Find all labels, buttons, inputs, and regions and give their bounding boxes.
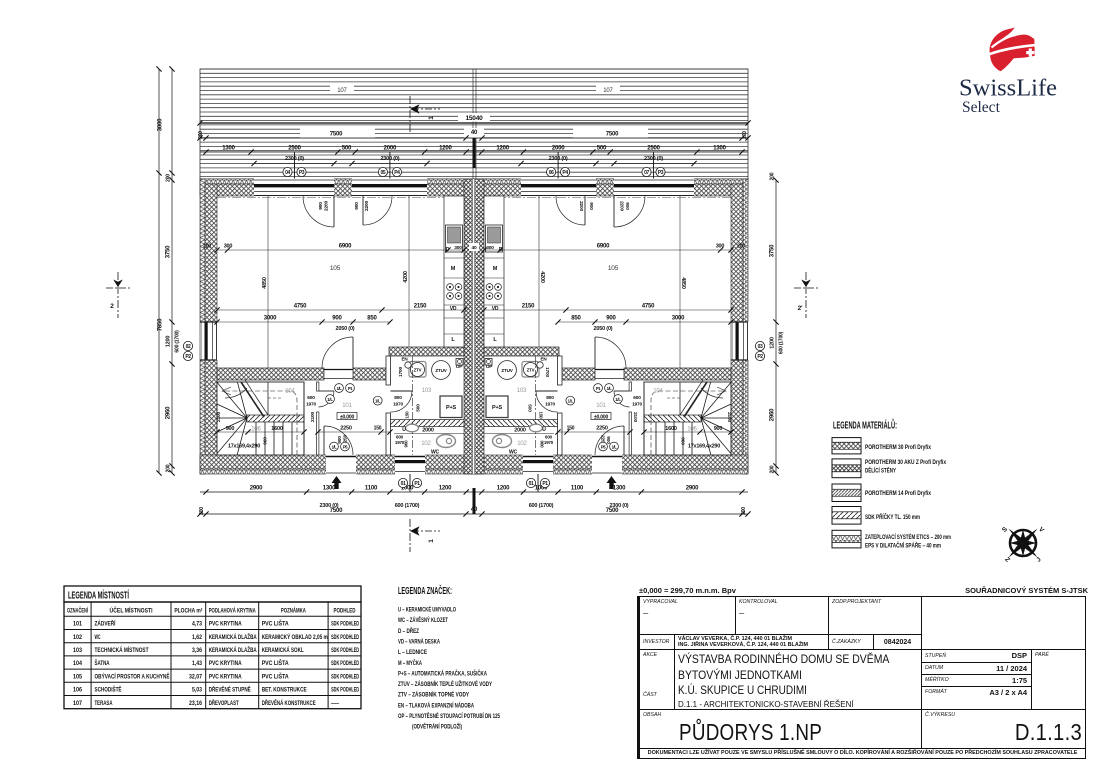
svg-text:2100: 2100 xyxy=(310,412,316,422)
svg-text:102: 102 xyxy=(421,441,431,447)
svg-text:106: 106 xyxy=(687,427,697,433)
svg-text:PVC KRYTINA: PVC KRYTINA xyxy=(209,621,242,628)
svg-text:1100: 1100 xyxy=(571,486,584,492)
svg-text:ZATEPLOVACÍ SYSTÉM ETICS – 200: ZATEPLOVACÍ SYSTÉM ETICS – 200 mm xyxy=(865,532,951,541)
svg-text:SwissLife: SwissLife xyxy=(959,75,1057,102)
svg-text:1200: 1200 xyxy=(439,486,452,492)
svg-text:900: 900 xyxy=(606,316,616,322)
svg-text:600 (1700): 600 (1700) xyxy=(395,503,420,509)
svg-text:4750: 4750 xyxy=(294,304,307,310)
svg-text:DŘEVĚNÉ STUPNĚ: DŘEVĚNÉ STUPNĚ xyxy=(209,686,251,694)
svg-text:3750: 3750 xyxy=(770,244,776,257)
svg-text:107: 107 xyxy=(73,701,83,707)
svg-text:SDK PODHLED: SDK PODHLED xyxy=(331,687,359,694)
svg-text:105: 105 xyxy=(73,674,83,680)
svg-text:1300: 1300 xyxy=(323,486,336,492)
svg-text:900: 900 xyxy=(624,202,630,210)
svg-text:ÚČEL MÍSTNOSTI: ÚČEL MÍSTNOSTI xyxy=(110,607,153,615)
svg-text:900: 900 xyxy=(337,436,343,444)
svg-text:1/L: 1/L xyxy=(568,398,574,403)
svg-text:103: 103 xyxy=(517,388,527,394)
svg-text:600: 600 xyxy=(633,395,641,401)
svg-text:2100: 2100 xyxy=(726,412,732,422)
svg-text:WC: WC xyxy=(95,634,101,641)
svg-text:1/L: 1/L xyxy=(607,386,613,391)
svg-text:U: U xyxy=(402,427,406,433)
svg-text:U: U xyxy=(542,427,546,433)
svg-text:32,07: 32,07 xyxy=(189,673,202,680)
svg-text:OP: OP xyxy=(456,364,464,370)
svg-text:P+S: P+S xyxy=(446,405,456,411)
svg-text:106: 106 xyxy=(251,427,261,433)
svg-text:300: 300 xyxy=(454,245,462,251)
svg-text:102: 102 xyxy=(517,441,527,447)
svg-text:PODHLED: PODHLED xyxy=(334,608,356,615)
svg-text:4850: 4850 xyxy=(680,277,686,289)
svg-text:P1: P1 xyxy=(414,481,420,487)
svg-text:———: ——— xyxy=(331,700,339,707)
svg-text:DŘEVĚNÁ KONSTRUKCE: DŘEVĚNÁ KONSTRUKCE xyxy=(262,699,316,707)
svg-text:7850: 7850 xyxy=(158,318,164,331)
svg-text:2150: 2150 xyxy=(522,304,535,310)
svg-text:300: 300 xyxy=(486,245,494,251)
svg-text:2900: 2900 xyxy=(686,486,699,492)
svg-text:2500: 2500 xyxy=(288,146,301,152)
svg-text:1970: 1970 xyxy=(393,402,403,408)
svg-text:1/L: 1/L xyxy=(375,398,381,403)
svg-text:101: 101 xyxy=(73,622,83,628)
svg-text:ZTV: ZTV xyxy=(527,368,535,373)
svg-text:1700: 1700 xyxy=(398,367,404,377)
svg-text:106: 106 xyxy=(73,688,83,694)
svg-text:40: 40 xyxy=(471,507,478,513)
svg-text:D: D xyxy=(446,247,450,253)
svg-text:200: 200 xyxy=(770,172,776,180)
svg-text:960: 960 xyxy=(263,437,269,445)
svg-text:850: 850 xyxy=(571,316,581,322)
svg-text:40: 40 xyxy=(472,245,477,251)
svg-text:101: 101 xyxy=(596,403,606,409)
svg-text:7500: 7500 xyxy=(330,508,343,514)
svg-text:1,62: 1,62 xyxy=(192,634,202,641)
svg-text:2000: 2000 xyxy=(422,428,434,434)
svg-text:DŘEVOPLAST: DŘEVOPLAST xyxy=(209,699,239,707)
svg-text:1: 1 xyxy=(428,116,435,120)
svg-text:LEGENDA ZNAČEK:: LEGENDA ZNAČEK: xyxy=(398,584,452,597)
svg-text:2000: 2000 xyxy=(514,428,526,434)
svg-text:200: 200 xyxy=(770,465,776,473)
svg-text:WC: WC xyxy=(431,450,440,456)
svg-text:150: 150 xyxy=(374,426,382,432)
svg-text:103: 103 xyxy=(73,648,83,654)
svg-text:17x169,4x290: 17x169,4x290 xyxy=(688,444,720,450)
svg-text:107: 107 xyxy=(337,88,347,94)
svg-text:Select: Select xyxy=(962,99,1001,116)
svg-text:1970: 1970 xyxy=(545,402,555,408)
svg-text:3750: 3750 xyxy=(166,245,172,258)
svg-text:2150: 2150 xyxy=(414,304,427,310)
svg-text:ZTUV – ZÁSOBNÍK TEPLÉ UŽITKOVÉ: ZTUV – ZÁSOBNÍK TEPLÉ UŽITKOVÉ VODY xyxy=(398,679,493,688)
svg-text:POZNÁMKA: POZNÁMKA xyxy=(281,608,306,615)
svg-text:2500: 2500 xyxy=(647,146,660,152)
svg-text:SDK PODHLED: SDK PODHLED xyxy=(331,647,359,654)
svg-text:2: 2 xyxy=(110,303,114,310)
svg-text:POROTHERM 14 Profi Dryfix: POROTHERM 14 Profi Dryfix xyxy=(865,490,931,497)
svg-text:POROTHERM 30 Profi Dryfix: POROTHERM 30 Profi Dryfix xyxy=(865,444,931,451)
svg-text:1/L: 1/L xyxy=(615,397,621,402)
svg-text:M – MYČKA: M – MYČKA xyxy=(398,658,422,667)
svg-text:1600: 1600 xyxy=(271,426,283,432)
svg-text:1200: 1200 xyxy=(439,146,452,152)
svg-text:600 (1700): 600 (1700) xyxy=(529,503,554,509)
svg-text:200: 200 xyxy=(742,131,748,139)
svg-text:OZNAČENÍ: OZNAČENÍ xyxy=(67,607,88,615)
svg-text:600 (1700): 600 (1700) xyxy=(175,330,181,353)
svg-text:KERAMICKÁ DLAŽBA: KERAMICKÁ DLAŽBA xyxy=(209,646,257,654)
svg-text:03: 03 xyxy=(758,344,763,350)
svg-text:1970: 1970 xyxy=(632,402,642,408)
svg-text:1200: 1200 xyxy=(496,146,509,152)
svg-text:KERAMICKÝ OBKLAD 2,05 m: KERAMICKÝ OBKLAD 2,05 m xyxy=(262,634,328,641)
svg-text:VD: VD xyxy=(492,306,499,312)
svg-text:104: 104 xyxy=(285,389,295,395)
svg-text:LEGENDA MÍSTNOSTÍ: LEGENDA MÍSTNOSTÍ xyxy=(68,589,130,602)
svg-text:ZTV: ZTV xyxy=(414,368,422,373)
svg-text:2050 (0): 2050 (0) xyxy=(336,326,355,332)
svg-text:900: 900 xyxy=(540,441,545,449)
svg-text:D – DŘEZ: D – DŘEZ xyxy=(398,626,419,635)
svg-text:600: 600 xyxy=(396,435,404,440)
svg-text:01: 01 xyxy=(401,481,406,487)
svg-text:ŠATNA: ŠATNA xyxy=(95,659,110,667)
svg-text:1600: 1600 xyxy=(665,426,677,432)
svg-text:TECHNICKÁ MÍSTNOST: TECHNICKÁ MÍSTNOST xyxy=(95,646,149,654)
svg-text:TERASA: TERASA xyxy=(95,700,113,707)
svg-text:01: 01 xyxy=(529,481,534,487)
svg-text:1970: 1970 xyxy=(306,402,316,408)
svg-text:7500: 7500 xyxy=(330,132,343,138)
svg-text:2200: 2200 xyxy=(364,201,370,211)
svg-text:40: 40 xyxy=(471,130,478,136)
svg-text:DĚLÍCÍ STĚNY: DĚLÍCÍ STĚNY xyxy=(865,466,897,475)
svg-text:900: 900 xyxy=(226,426,235,432)
svg-text:2250: 2250 xyxy=(596,426,608,432)
svg-text:2960: 2960 xyxy=(166,406,172,419)
svg-text:2200: 2200 xyxy=(619,201,625,211)
svg-text:1/L: 1/L xyxy=(612,444,618,449)
svg-text:PVC KRYTINA: PVC KRYTINA xyxy=(209,673,242,680)
svg-text:600 (1700): 600 (1700) xyxy=(779,331,785,354)
svg-text:101: 101 xyxy=(342,403,352,409)
svg-text:P3: P3 xyxy=(299,170,305,176)
svg-text:4200: 4200 xyxy=(403,271,409,283)
svg-text:1700: 1700 xyxy=(544,367,550,377)
svg-text:900: 900 xyxy=(354,202,360,210)
svg-text:1300: 1300 xyxy=(613,486,626,492)
svg-text:WC: WC xyxy=(509,450,518,456)
svg-text:U – KERAMICKÉ UMYVADLO: U – KERAMICKÉ UMYVADLO xyxy=(398,605,456,614)
svg-text:2200: 2200 xyxy=(578,201,584,211)
svg-text:1/L: 1/L xyxy=(337,386,343,391)
svg-text:2900: 2900 xyxy=(250,486,263,492)
svg-text:1200: 1200 xyxy=(497,486,510,492)
svg-text:D: D xyxy=(499,247,503,253)
svg-text:7500: 7500 xyxy=(606,508,619,514)
svg-text:1/L: 1/L xyxy=(327,397,333,402)
svg-text:200: 200 xyxy=(741,507,747,515)
svg-text:ZTUV: ZTUV xyxy=(501,368,513,373)
svg-text:P4: P4 xyxy=(394,170,400,176)
svg-text:05: 05 xyxy=(381,170,386,176)
svg-text:SDK PODHLED: SDK PODHLED xyxy=(331,660,359,667)
svg-text:ZÁDVEŘÍ: ZÁDVEŘÍ xyxy=(95,620,116,628)
svg-text:900: 900 xyxy=(588,202,594,210)
svg-text:300: 300 xyxy=(224,244,233,250)
svg-text:4750: 4750 xyxy=(642,304,655,310)
svg-text:500: 500 xyxy=(342,146,352,152)
svg-text:2960: 2960 xyxy=(770,408,776,421)
svg-text:1300: 1300 xyxy=(222,146,235,152)
svg-text:PVC LIŠTA: PVC LIŠTA xyxy=(262,672,289,680)
svg-text:06: 06 xyxy=(549,170,554,176)
svg-text:P+S: P+S xyxy=(492,405,502,411)
svg-text:500: 500 xyxy=(527,404,533,412)
svg-text:3000: 3000 xyxy=(264,316,277,322)
svg-text:02: 02 xyxy=(186,344,191,350)
svg-text:1: 1 xyxy=(428,539,435,543)
svg-text:1/L: 1/L xyxy=(332,444,338,449)
svg-text:150: 150 xyxy=(567,426,575,432)
svg-text:SDK PODHLED: SDK PODHLED xyxy=(331,673,359,680)
svg-text:2200: 2200 xyxy=(324,201,330,211)
svg-text:KERAMICKÁ SOKL: KERAMICKÁ SOKL xyxy=(262,647,304,654)
svg-text:500: 500 xyxy=(597,146,607,152)
svg-text:6900: 6900 xyxy=(597,244,610,250)
svg-text:200: 200 xyxy=(166,174,172,182)
svg-text:150: 150 xyxy=(405,411,410,419)
svg-text:1200: 1200 xyxy=(166,336,172,348)
svg-text:900: 900 xyxy=(714,426,723,432)
svg-text:23,16: 23,16 xyxy=(189,700,202,707)
svg-text:WC – ZÁVĚSNÝ KLOZET: WC – ZÁVĚSNÝ KLOZET xyxy=(398,615,448,624)
svg-text:105: 105 xyxy=(330,265,341,272)
svg-text:4,73: 4,73 xyxy=(192,621,202,628)
svg-text:SDK PŘÍČKY TL. 150 mm: SDK PŘÍČKY TL. 150 mm xyxy=(865,512,920,521)
svg-text:104: 104 xyxy=(73,661,83,667)
svg-text:200: 200 xyxy=(203,244,211,250)
svg-text:105: 105 xyxy=(608,265,619,272)
svg-text:PVC LIŠTA: PVC LIŠTA xyxy=(262,659,289,667)
svg-text:SDK PODHLED: SDK PODHLED xyxy=(331,634,359,641)
svg-text:VD: VD xyxy=(450,306,457,312)
svg-text:L – LEDNICE: L – LEDNICE xyxy=(398,649,428,656)
svg-text:EPS V DILATAČNÍ SPÁŘE – 40 mm: EPS V DILATAČNÍ SPÁŘE – 40 mm xyxy=(865,541,941,550)
svg-text:102: 102 xyxy=(73,635,83,641)
svg-text:107: 107 xyxy=(603,88,613,94)
svg-text:1,43: 1,43 xyxy=(192,660,202,667)
svg-text:6900: 6900 xyxy=(339,244,352,250)
svg-text:EN – TLAKOVÁ EXPANZNÍ NÁDOBA: EN – TLAKOVÁ EXPANZNÍ NÁDOBA xyxy=(398,700,474,709)
svg-text:2050 (0): 2050 (0) xyxy=(594,326,613,332)
svg-text:EN: EN xyxy=(402,357,409,362)
svg-text:P2: P2 xyxy=(757,354,763,360)
svg-text:200: 200 xyxy=(166,464,172,472)
svg-text:17x169,4x290: 17x169,4x290 xyxy=(228,444,260,450)
svg-text:PVC LIŠTA: PVC LIŠTA xyxy=(262,620,289,628)
svg-text:(ODVĚTRÁNÍ PODLOŽÍ): (ODVĚTRÁNÍ PODLOŽÍ) xyxy=(412,722,462,731)
svg-text:M: M xyxy=(451,266,456,272)
svg-text:P2: P2 xyxy=(185,354,191,360)
svg-text:07: 07 xyxy=(644,170,649,176)
svg-text:2000: 2000 xyxy=(552,146,565,152)
svg-text:104: 104 xyxy=(653,389,663,395)
svg-text:ZTV – ZÁSOBNÍK TOPNÉ VODY: ZTV – ZÁSOBNÍK TOPNÉ VODY xyxy=(398,690,470,699)
svg-text:2100: 2100 xyxy=(632,412,638,422)
svg-text:850: 850 xyxy=(367,316,377,322)
svg-text:ZTUV: ZTUV xyxy=(435,368,447,373)
svg-text:4200: 4200 xyxy=(539,271,545,283)
svg-text:15040: 15040 xyxy=(465,115,483,122)
svg-text:103: 103 xyxy=(422,388,432,394)
svg-text:600: 600 xyxy=(307,395,315,401)
svg-text:5,03: 5,03 xyxy=(192,687,202,694)
svg-text:PODLAHOVÁ KRYTINA: PODLAHOVÁ KRYTINA xyxy=(209,608,256,615)
svg-text:1100: 1100 xyxy=(365,486,378,492)
svg-text:SDK PODHLED: SDK PODHLED xyxy=(331,621,359,628)
svg-text:3,36: 3,36 xyxy=(192,647,202,654)
svg-text:2000: 2000 xyxy=(384,146,397,152)
svg-text:900: 900 xyxy=(404,440,409,448)
svg-text:SCHODIŠTĚ: SCHODIŠTĚ xyxy=(95,686,122,694)
svg-text:150: 150 xyxy=(539,412,544,420)
svg-text:PVC KRYTINA: PVC KRYTINA xyxy=(209,660,242,667)
svg-text:900: 900 xyxy=(332,316,342,322)
svg-text:PLOCHA m²: PLOCHA m² xyxy=(174,608,202,615)
svg-text:2100: 2100 xyxy=(216,412,222,422)
svg-text:VD – VARNÁ DESKA: VD – VARNÁ DESKA xyxy=(398,636,440,645)
svg-text:500: 500 xyxy=(416,404,422,412)
svg-text:2250: 2250 xyxy=(340,426,352,432)
svg-text:M: M xyxy=(493,266,498,272)
svg-text:P3: P3 xyxy=(658,170,664,176)
svg-text:OP: OP xyxy=(486,364,494,370)
svg-text:200: 200 xyxy=(198,131,204,139)
svg-text:200: 200 xyxy=(737,244,745,250)
svg-text:P+S – AUTOMATICKÁ PRAČKA, SUŠI: P+S – AUTOMATICKÁ PRAČKA, SUŠIČKA xyxy=(398,668,487,677)
svg-text:KERAMICKÁ DLAŽBA: KERAMICKÁ DLAŽBA xyxy=(209,633,257,641)
svg-text:1300: 1300 xyxy=(713,146,726,152)
svg-text:POROTHERM 30 AKU Z Profi Dryfi: POROTHERM 30 AKU Z Profi Dryfix xyxy=(865,459,946,466)
svg-text:04: 04 xyxy=(285,170,290,176)
svg-text:EN: EN xyxy=(541,357,548,362)
svg-text:1200: 1200 xyxy=(770,337,776,349)
svg-text:960: 960 xyxy=(680,437,686,445)
svg-text:800: 800 xyxy=(394,395,402,401)
svg-text:OBÝVACÍ PROSTOR A KUCHYNĚ: OBÝVACÍ PROSTOR A KUCHYNĚ xyxy=(95,672,170,680)
svg-text:300: 300 xyxy=(716,244,725,250)
svg-text:BET. KONSTRUKCE: BET. KONSTRUKCE xyxy=(262,687,307,694)
svg-text:600: 600 xyxy=(545,435,553,440)
svg-text:3000: 3000 xyxy=(672,316,685,322)
svg-text:3000: 3000 xyxy=(158,118,164,131)
svg-text:900: 900 xyxy=(318,202,324,210)
svg-text:LEGENDA MATERIÁLŮ:: LEGENDA MATERIÁLŮ: xyxy=(833,418,897,432)
svg-text:OP – PLYNOTĚSNÉ STOUPACÍ POTRU: OP – PLYNOTĚSNÉ STOUPACÍ POTRUBÍ DN 125 xyxy=(398,711,500,720)
svg-text:2': 2' xyxy=(798,305,803,312)
svg-text:P4: P4 xyxy=(562,170,568,176)
svg-text:800: 800 xyxy=(546,395,554,401)
svg-text:4850: 4850 xyxy=(262,277,268,289)
svg-text:7500: 7500 xyxy=(606,132,619,138)
svg-text:P1: P1 xyxy=(542,481,548,487)
svg-text:200: 200 xyxy=(199,507,205,515)
